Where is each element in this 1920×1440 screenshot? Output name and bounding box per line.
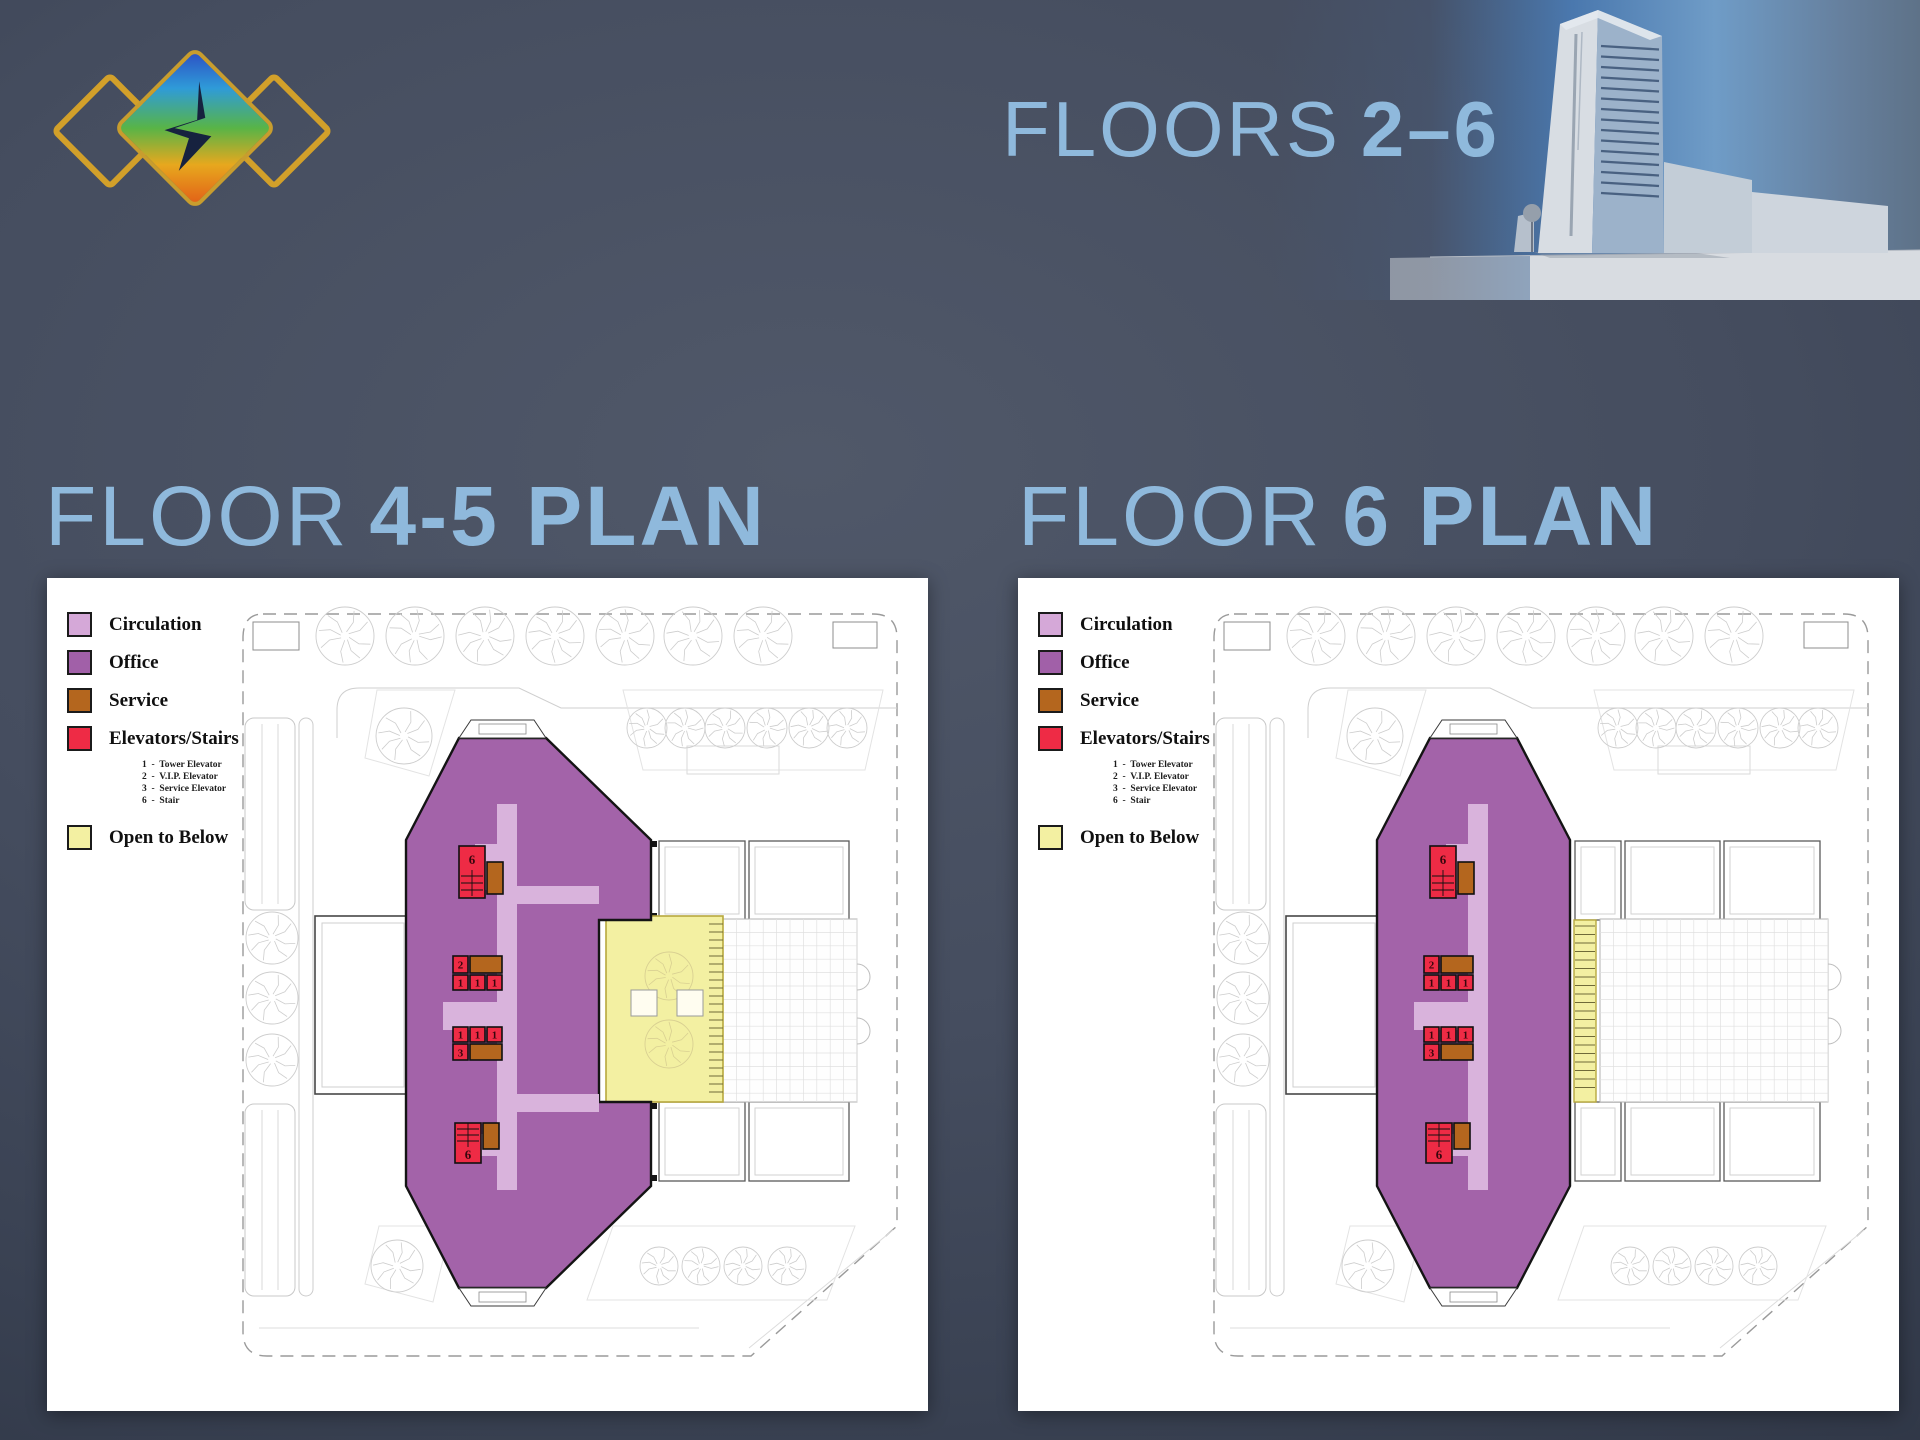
legend-label-open-to-below: Open to Below — [1080, 827, 1199, 849]
tree-icon — [1695, 1247, 1733, 1285]
tower-elevator-number: 1 — [492, 1030, 498, 1042]
vip-elevator-number: 2 — [1429, 960, 1435, 972]
legend-swatch-office — [1038, 650, 1063, 675]
tree-icon — [665, 708, 705, 748]
legend-swatch-circulation — [67, 612, 92, 637]
tree-icon — [1217, 972, 1269, 1024]
tower-elevator-number: 1 — [458, 1030, 464, 1042]
tree-icon — [1718, 708, 1758, 748]
tree-icon — [1705, 607, 1763, 665]
legend-swatch-elevators-stairs — [67, 726, 92, 751]
service-elevator-number: 3 — [1429, 1048, 1435, 1060]
walkway-strip — [299, 718, 313, 1296]
legend-label-circulation: Circulation — [109, 614, 202, 636]
tree-icon — [1739, 1247, 1777, 1285]
tower-elevator-number: 1 — [475, 978, 481, 990]
lamp-sphere — [1523, 204, 1541, 222]
tree-icon — [386, 607, 444, 665]
tree-icon — [1497, 607, 1555, 665]
tower-elevator-number: 1 — [1463, 978, 1469, 990]
legend-label-elevators-stairs: Elevators/Stairs — [1080, 728, 1210, 750]
plan-title-regular: FLOOR — [1018, 469, 1322, 563]
tree-icon — [1611, 1247, 1649, 1285]
logo-bolt-icon — [138, 71, 244, 177]
left-wing — [1286, 916, 1383, 1094]
legend-item-circulation: Circulation — [1038, 612, 1210, 637]
legend-swatch-circulation — [1038, 612, 1063, 637]
legend-label-service: Service — [109, 690, 168, 712]
tower-elevator-number: 1 — [1446, 978, 1452, 990]
tree-icon — [1342, 1240, 1394, 1292]
tower-elevator-number: 1 — [492, 978, 498, 990]
plan-title-bold: 4-5 PLAN — [369, 469, 766, 563]
legend-label-elevators-stairs: Elevators/Stairs — [109, 728, 239, 750]
podium-near — [1664, 162, 1752, 253]
vip-elevator-number: 2 — [458, 960, 464, 972]
stair-number: 6 — [1436, 1147, 1443, 1162]
legend-item-office: Office — [67, 650, 239, 675]
tree-icon — [1676, 708, 1716, 748]
tree-icon — [724, 1247, 762, 1285]
service-elevator-number: 3 — [458, 1048, 464, 1060]
floor-4-5-plan-panel: 6 2 1 1 1 1 1 1 3 6 Circulation Office — [47, 578, 928, 1411]
tree-icon — [1347, 708, 1403, 764]
tree-icon — [789, 708, 829, 748]
tower-elevator-number: 1 — [475, 1030, 481, 1042]
tree-icon — [1217, 1034, 1269, 1086]
legend-item-elevators-stairs: Elevators/Stairs — [67, 726, 239, 751]
plan-title-bold: 6 PLAN — [1342, 469, 1659, 563]
walkway-strip — [1270, 718, 1284, 1296]
tree-icon — [734, 607, 792, 665]
legend-swatch-service — [1038, 688, 1063, 713]
planter-strip-upper — [1216, 718, 1266, 910]
legend-item-service: Service — [1038, 688, 1210, 713]
tower-elevator-number: 1 — [1429, 978, 1435, 990]
legend-elevator-key-list: 1 - Tower Elevator2 - V.I.P. Elevator3 -… — [1113, 759, 1210, 807]
tree-icon — [1798, 708, 1838, 748]
presentation-slide: FLOORS2–6 FLOOR4-5 PLAN FLOOR6 PLAN — [0, 0, 1920, 1440]
legend-elevator-key-line: 3 - Service Elevator — [142, 783, 239, 795]
tree-icon — [827, 708, 867, 748]
tree-icon — [1567, 607, 1625, 665]
stair-number: 6 — [1440, 852, 1447, 867]
plan-legend: Circulation Office Service Elevators/Sta… — [1038, 612, 1210, 863]
courtyard — [1600, 919, 1841, 1102]
tree-icon — [1287, 607, 1345, 665]
legend-label-open-to-below: Open to Below — [109, 827, 228, 849]
plan-canvas: 6 2 1 1 1 1 1 1 3 6 Circulation Office — [47, 578, 928, 1411]
legend-elevator-key-line: 3 - Service Elevator — [1113, 783, 1210, 795]
slide-title-regular: FLOORS — [1002, 85, 1341, 173]
legend-elevator-key-line: 1 - Tower Elevator — [1113, 759, 1210, 771]
slide-title: FLOORS2–6 — [740, 84, 1500, 175]
legend-elevator-key-line: 2 - V.I.P. Elevator — [142, 771, 239, 783]
tree-icon — [376, 708, 432, 764]
tree-icon — [1760, 708, 1800, 748]
tree-icon — [371, 1240, 423, 1292]
legend-label-service: Service — [1080, 690, 1139, 712]
legend-elevator-key-line: 2 - V.I.P. Elevator — [1113, 771, 1210, 783]
legend-swatch-elevators-stairs — [1038, 726, 1063, 751]
tree-icon — [705, 708, 745, 748]
tree-icon — [747, 708, 787, 748]
legend-item-open-to-below: Open to Below — [1038, 825, 1210, 850]
tower-elevator-number: 1 — [458, 978, 464, 990]
tower-elevator-number: 1 — [1446, 1030, 1452, 1042]
tower-left-face — [1538, 10, 1598, 253]
tower-elevator-number: 1 — [1463, 1030, 1469, 1042]
legend-elevator-key-line: 6 - Stair — [142, 795, 239, 807]
legend-item-circulation: Circulation — [67, 612, 239, 637]
tree-icon — [1427, 607, 1485, 665]
legend-item-service: Service — [67, 688, 239, 713]
legend-swatch-office — [67, 650, 92, 675]
legend-label-circulation: Circulation — [1080, 614, 1173, 636]
tree-icon — [456, 607, 514, 665]
open-to-below-area — [606, 916, 723, 1102]
podium-far — [1752, 192, 1888, 253]
tree-icon — [664, 607, 722, 665]
tree-icon — [682, 1247, 720, 1285]
legend-elevator-key-list: 1 - Tower Elevator2 - V.I.P. Elevator3 -… — [142, 759, 239, 807]
floor-6-plan-title: FLOOR6 PLAN — [1018, 468, 1659, 565]
tree-icon — [1635, 607, 1693, 665]
stair-number: 6 — [465, 1147, 472, 1162]
tree-icon — [1357, 607, 1415, 665]
open-to-below-strip — [1574, 920, 1596, 1102]
left-wing — [315, 916, 412, 1094]
legend-label-office: Office — [1080, 652, 1130, 674]
tree-icon — [316, 607, 374, 665]
legend-swatch-open-to-below — [67, 825, 92, 850]
planter-strip-lower — [245, 1104, 295, 1296]
tree-icon — [246, 912, 298, 964]
tower-elevator-number: 1 — [1429, 1030, 1435, 1042]
tree-icon — [1653, 1247, 1691, 1285]
slide-title-bold: 2–6 — [1361, 85, 1500, 173]
legend-elevator-key-line: 1 - Tower Elevator — [142, 759, 239, 771]
legend-item-elevators-stairs: Elevators/Stairs — [1038, 726, 1210, 751]
courtyard — [723, 919, 870, 1102]
floor-6-plan-panel: 6 2 1 1 1 1 1 1 3 6 Circulation Office — [1018, 578, 1899, 1411]
planter-strip-upper — [245, 718, 295, 910]
tree-icon — [768, 1247, 806, 1285]
legend-elevator-key-line: 6 - Stair — [1113, 795, 1210, 807]
legend-item-office: Office — [1038, 650, 1210, 675]
tree-icon — [596, 607, 654, 665]
tree-icon — [526, 607, 584, 665]
tree-icon — [246, 1034, 298, 1086]
legend-swatch-service — [67, 688, 92, 713]
legend-swatch-open-to-below — [1038, 825, 1063, 850]
tree-icon — [640, 1247, 678, 1285]
legend-label-office: Office — [109, 652, 159, 674]
plan-legend: Circulation Office Service Elevators/Sta… — [67, 612, 239, 863]
stair-number: 6 — [469, 852, 476, 867]
tree-icon — [1217, 912, 1269, 964]
planter-strip-lower — [1216, 1104, 1266, 1296]
company-logo — [56, 48, 316, 206]
legend-item-open-to-below: Open to Below — [67, 825, 239, 850]
tree-icon — [1636, 708, 1676, 748]
plan-title-regular: FLOOR — [45, 469, 349, 563]
plan-canvas: 6 2 1 1 1 1 1 1 3 6 Circulation Office — [1018, 578, 1899, 1411]
floor-4-5-plan-title: FLOOR4-5 PLAN — [45, 468, 767, 565]
tree-icon — [246, 972, 298, 1024]
